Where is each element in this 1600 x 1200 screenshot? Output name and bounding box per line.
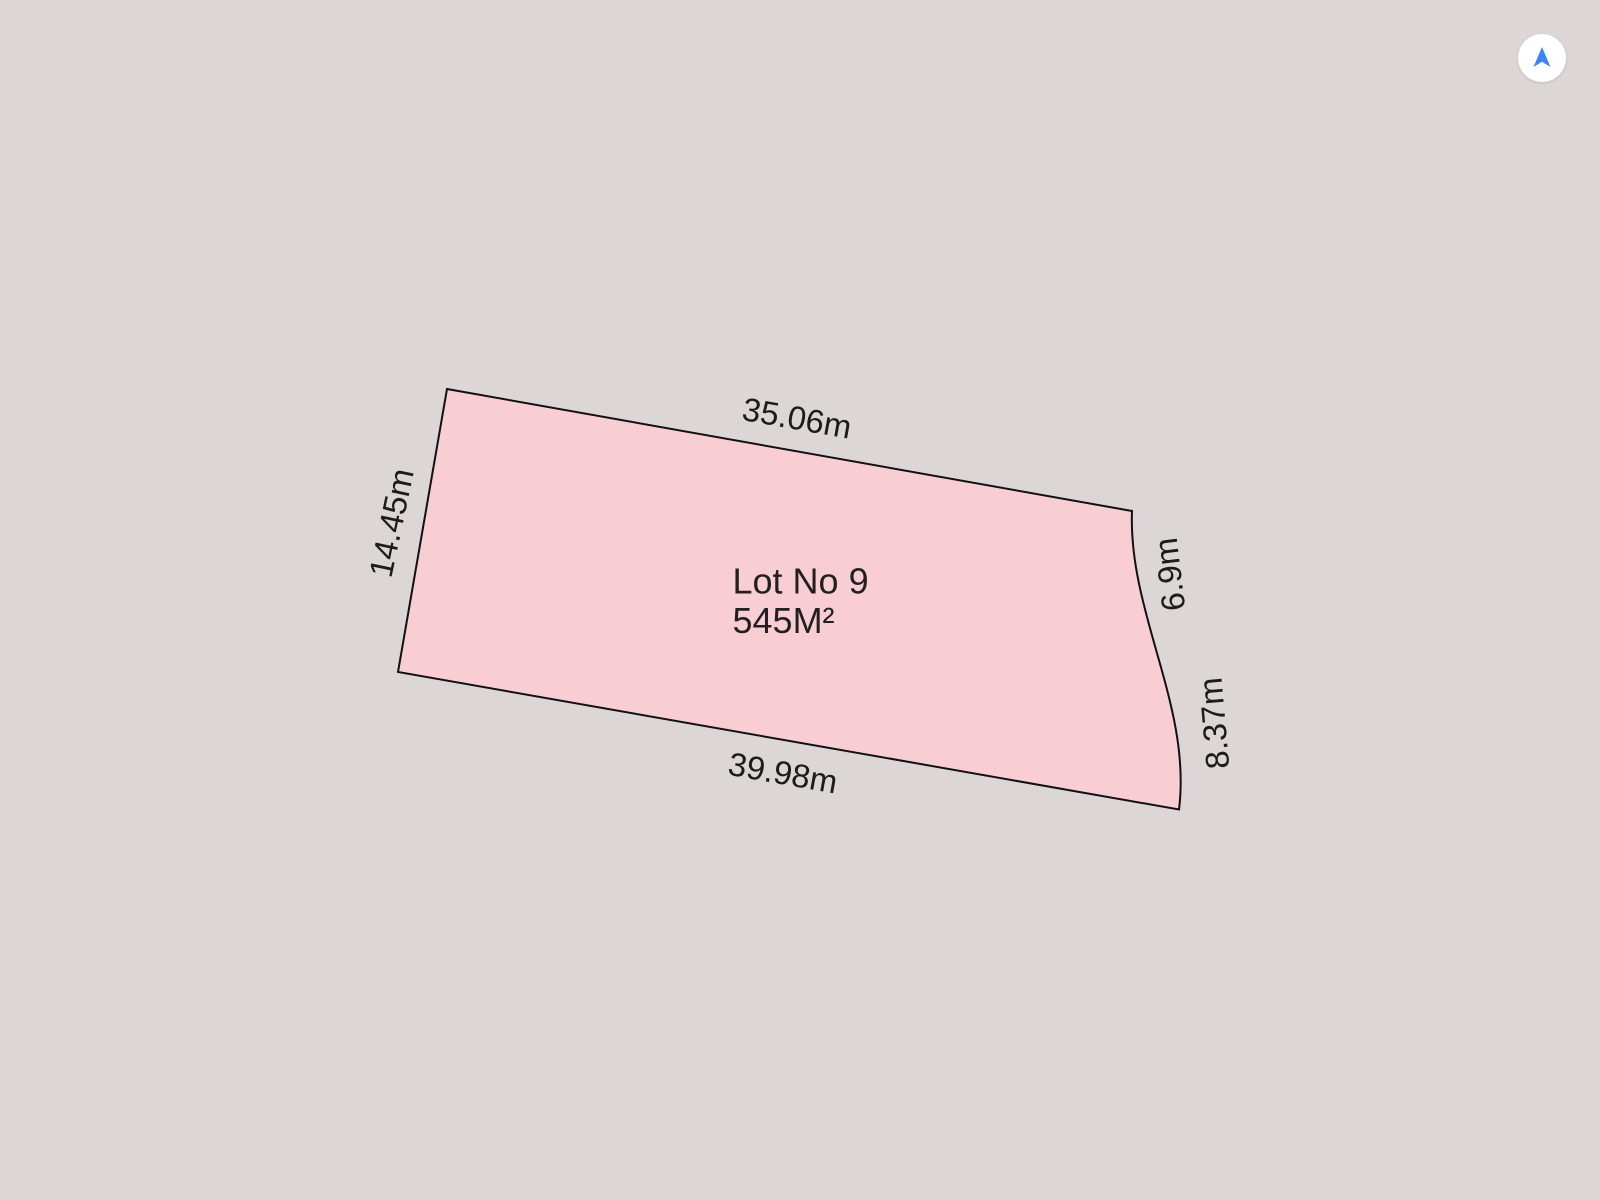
svg-text:39.98m: 39.98m <box>726 745 841 801</box>
svg-text:Lot No 9: Lot No 9 <box>733 561 869 602</box>
svg-text:14.45m: 14.45m <box>362 465 421 580</box>
svg-text:545M²: 545M² <box>733 600 835 641</box>
svg-text:8.37m: 8.37m <box>1192 676 1237 771</box>
svg-text:6.9m: 6.9m <box>1147 536 1193 613</box>
svg-text:35.06m: 35.06m <box>740 390 855 446</box>
